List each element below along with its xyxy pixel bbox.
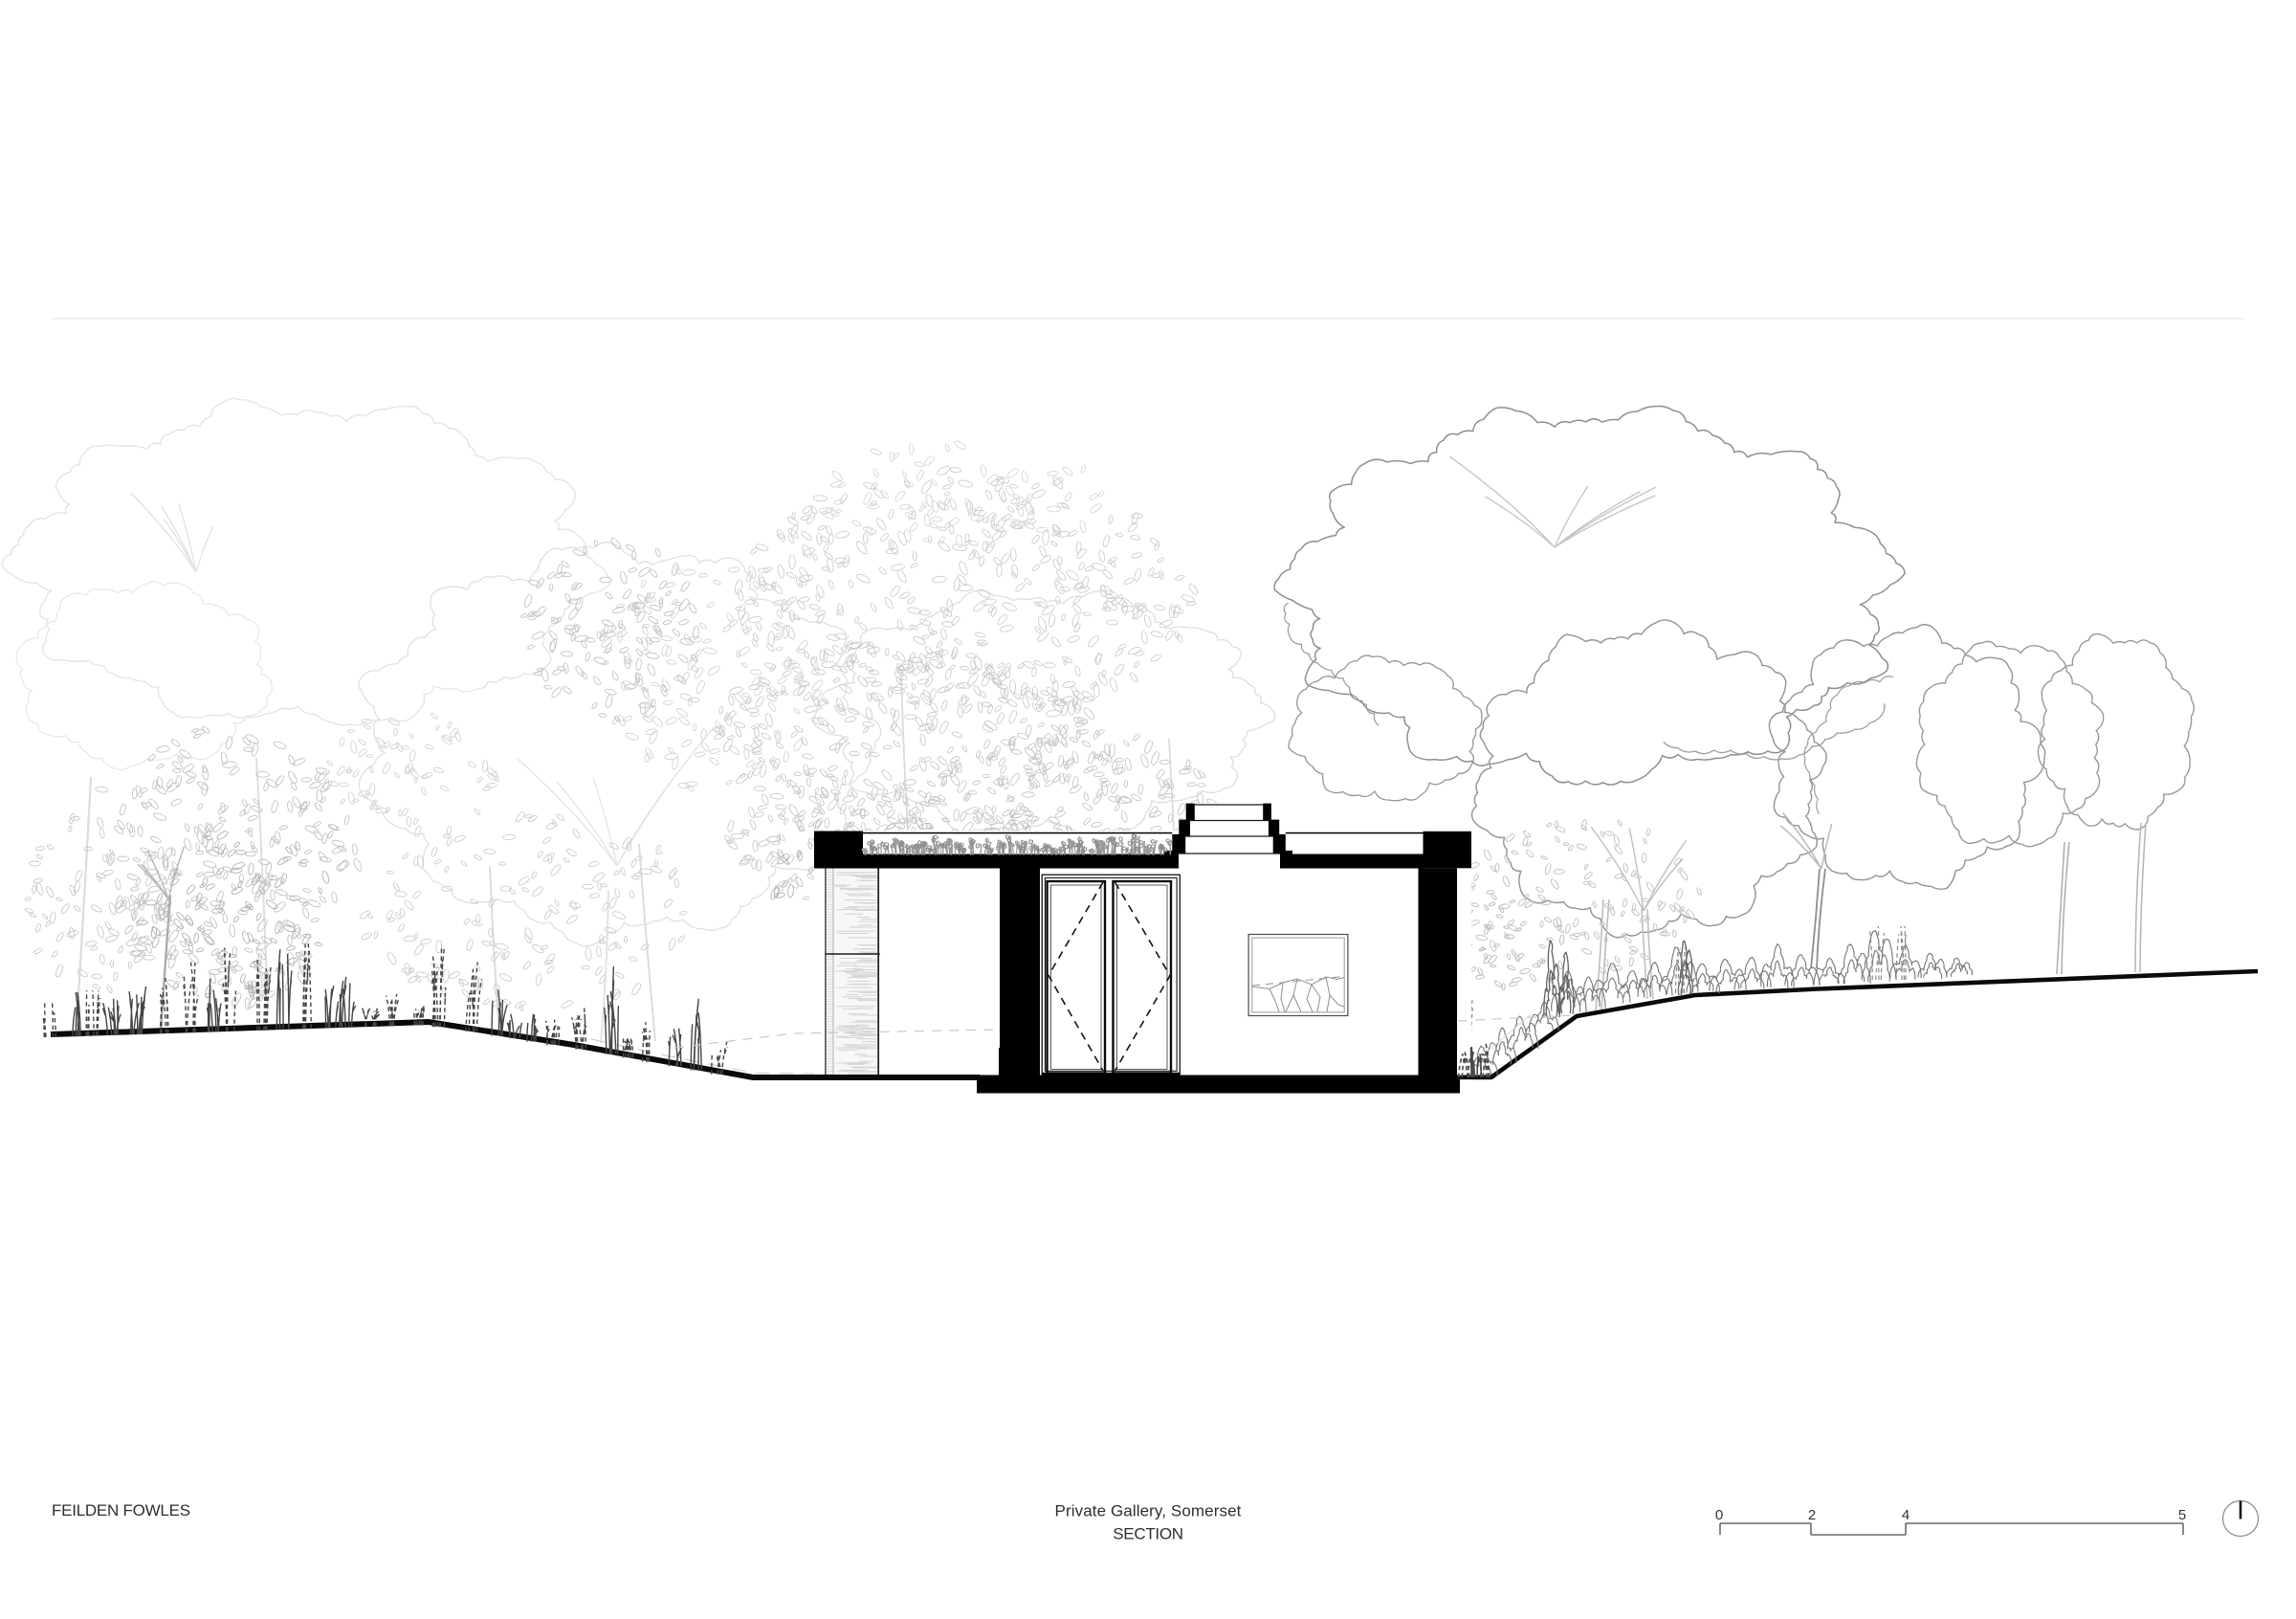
svg-text:Private Gallery, Somerset: Private Gallery, Somerset <box>1055 1502 1242 1520</box>
svg-text:0: 0 <box>1715 1507 1723 1523</box>
svg-text:5: 5 <box>2178 1507 2186 1523</box>
svg-text:SECTION: SECTION <box>1113 1525 1182 1543</box>
svg-text:2: 2 <box>1808 1507 1816 1523</box>
svg-text:FEILDEN FOWLES: FEILDEN FOWLES <box>52 1501 190 1519</box>
svg-text:4: 4 <box>1902 1507 1910 1523</box>
